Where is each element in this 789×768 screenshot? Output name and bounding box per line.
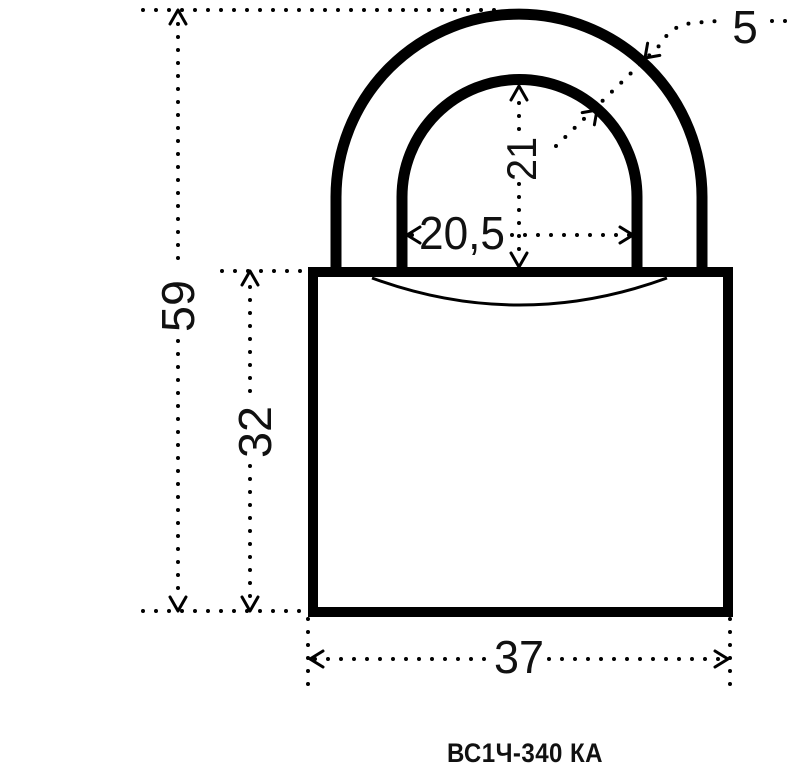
opening-width-label: 20,5 (419, 207, 505, 259)
arrowhead-205-right (620, 227, 633, 243)
padlock-drawing-canvas: 59 32 21 20,5 (0, 0, 789, 768)
arrowhead-21-down (511, 253, 527, 267)
dimension-opening-height: 21 (498, 86, 545, 267)
padlock-dimension-drawing: 59 32 21 20,5 (0, 0, 789, 768)
total-height-label: 59 (152, 280, 204, 332)
opening-height-label: 21 (498, 137, 545, 181)
dimension-opening-width: 20,5 (407, 207, 633, 259)
arrowhead-32-up (242, 271, 258, 285)
arrowhead-21-up (511, 86, 527, 100)
dimension-body-height: 32 (222, 271, 302, 611)
arrowhead-59-down (170, 597, 186, 611)
arrowhead-59-up (170, 10, 186, 24)
model-caption: ВС1Ч-340 КА (447, 738, 603, 768)
lock-body-outline (313, 272, 728, 612)
body-width-label: 37 (494, 631, 544, 683)
shackle-diameter-label: 5 (732, 1, 758, 53)
dimension-body-width: 37 (308, 619, 730, 696)
arrowhead-32-down (242, 597, 258, 611)
dimension-shackle-diameter: 5 (556, 1, 789, 146)
body-height-label: 32 (229, 406, 281, 458)
